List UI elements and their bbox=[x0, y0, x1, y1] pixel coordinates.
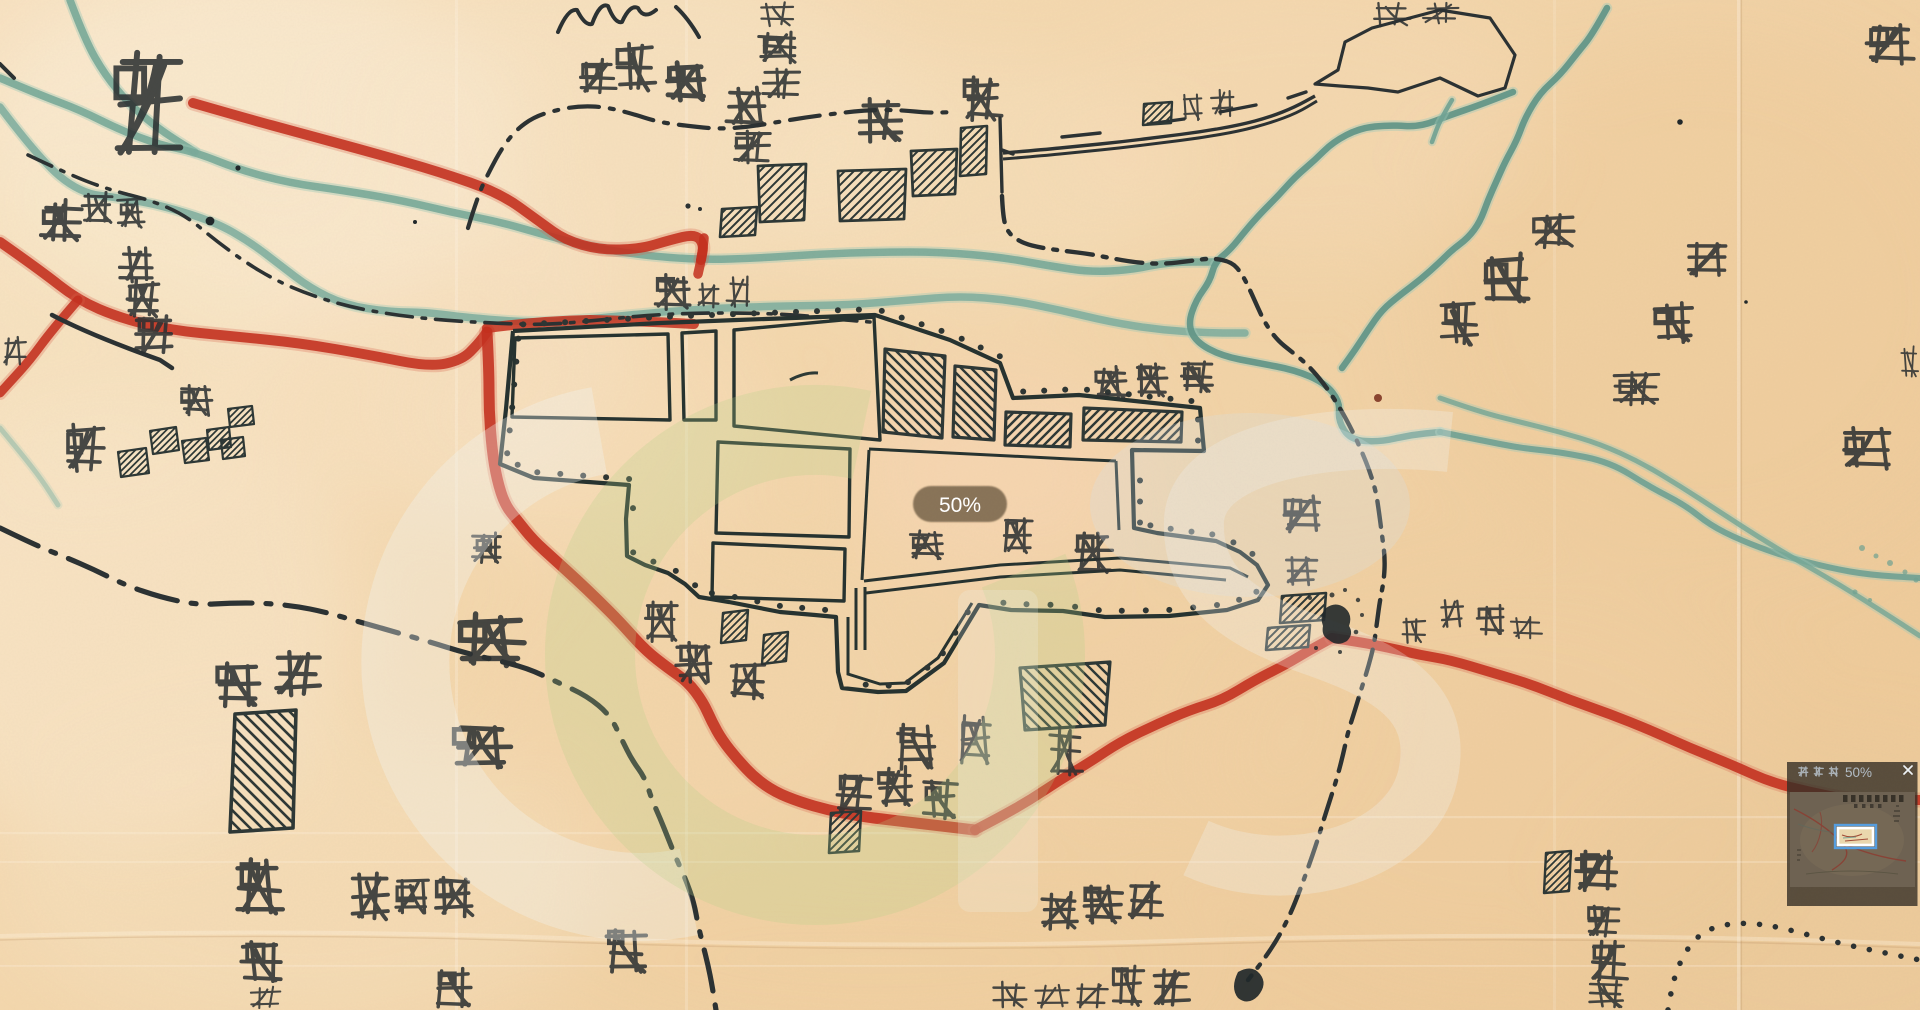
svg-text:50%: 50% bbox=[939, 494, 981, 517]
svg-text:50%: 50% bbox=[1845, 765, 1872, 780]
